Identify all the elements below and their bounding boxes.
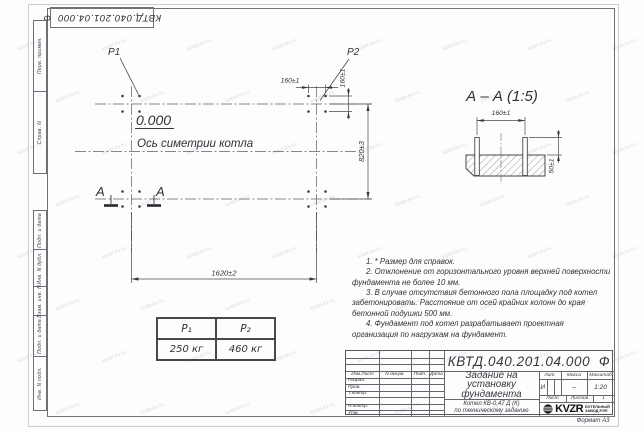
margin-label: Подп. и дата: [37, 213, 43, 248]
notes-block: 1. * Размер для справок. 2. Отклонение о…: [352, 257, 612, 340]
margin-label: Инв. N дубл.: [37, 252, 43, 285]
dim-arrow: [557, 155, 560, 161]
leader-lines: [120, 58, 349, 101]
tb-sheet-label: Лист: [539, 395, 566, 402]
anchor-bolt-left: [475, 138, 480, 176]
section-cut-marks: [104, 195, 161, 206]
dim-arrow: [367, 192, 370, 199]
dim-arrow: [347, 90, 350, 97]
section-view-title: А – А (1:5): [465, 88, 538, 105]
dim-820-label: 820±3: [357, 140, 366, 162]
margin-cell: Справ. N: [33, 91, 47, 174]
tb-mass-value: –: [561, 379, 587, 395]
note-4: 4. Фундамент под котел разрабатывает про…: [352, 319, 612, 340]
margin-label: Справ. N: [37, 121, 43, 144]
margin-cell: Подп. и дата: [33, 315, 47, 357]
load-table-header-p2: P₂: [216, 318, 275, 339]
tb-product-line1: Котел КВ-0,47 Д (К): [463, 401, 519, 408]
load-table: P₁ P₂ 250 кг 460 кг: [156, 317, 276, 361]
margin-label: Инв. N подл.: [37, 367, 43, 400]
rotated-doc-number: КВТД.040.201.04.000 Ф: [43, 12, 161, 23]
margin-cell: Взам. инв. N: [33, 286, 47, 316]
drawing-sheet: kotel-kv.rukotel-kv.rukotel-kv.rukotel-k…: [0, 0, 644, 430]
tb-title: Задание на установку фундамента: [444, 371, 539, 399]
margin-cell: Подп. и дата: [33, 210, 47, 250]
kvzr-logo-icon: [543, 404, 553, 414]
tb-row-tkontr: Т.контр.: [348, 391, 379, 398]
plan-axes: [75, 86, 372, 252]
note-1: 1. * Размер для справок.: [352, 257, 612, 267]
dim-arrow: [477, 119, 484, 122]
dim-1620-label: 1620±2: [212, 269, 238, 278]
dim-arrow: [557, 132, 560, 138]
dim-160s-lines: [477, 117, 525, 135]
load-point-p2-label: P2: [347, 47, 360, 58]
tb-product-line2: по техническому заданию: [454, 408, 528, 415]
anchor-bolt-right: [523, 138, 528, 176]
tb-lit-label: Лит.: [539, 371, 561, 379]
tb-col-podp: Подп.: [411, 371, 429, 378]
symmetry-axis-label: Ось симетрии котла: [137, 138, 253, 150]
kvzr-logo-subtitle: КОТЕЛЬНЫЙ ЗАВОД РЭП: [585, 405, 610, 413]
elevation-label: 0.000: [136, 112, 171, 128]
margin-cell: Перв. примен.: [33, 20, 47, 92]
rotated-doc-number-box: КВТД.040.201.04.000 Ф: [50, 7, 154, 28]
tb-col-data: Дата: [429, 371, 444, 378]
note-3: 3. В случае отсутствия бетонного пола пл…: [352, 288, 612, 319]
tb-title-line3: фундамента: [461, 390, 521, 399]
margin-strip-bottom: Подп. и дата Инв. N дубл. Взам. инв. N П…: [33, 210, 47, 411]
tb-sheets-value: 1: [593, 395, 614, 402]
load-table-header-p1: P₁: [157, 318, 216, 339]
kvzr-logo-text: KVZR: [555, 403, 583, 415]
kvzr-logo: KVZR КОТЕЛЬНЫЙ ЗАВОД РЭП: [539, 402, 614, 416]
tb-doc-number: КВТД.040.201.04.000 Ф: [444, 351, 614, 371]
kvzr-logo-sub2: ЗАВОД РЭП: [585, 409, 610, 413]
tb-scale-value: 1:20: [587, 379, 614, 395]
margin-label: Перв. примен.: [37, 37, 43, 74]
section-letter-left: А: [95, 184, 105, 199]
tb-mass-label: Масса: [561, 371, 587, 379]
tb-row-utv: Утв.: [348, 410, 379, 416]
margin-label: Взам. инв. N: [37, 285, 43, 318]
dim-160s-label: 160±1: [492, 110, 511, 117]
title-block: Изм.Лист N докум. Подп. Дата Разраб. Про…: [345, 350, 613, 415]
load-table-value-p1: 250 кг: [157, 339, 216, 360]
tb-product: Котел КВ-0,47 Д (К) по техническому зада…: [444, 399, 539, 416]
dim-arrow: [310, 277, 317, 280]
dim-160h-label: 160±1: [281, 78, 300, 85]
note-2: 2. Отклонение от горизонтального уровня …: [352, 267, 612, 288]
dim-arrow: [347, 112, 350, 119]
dim-50-label: 50±1: [549, 158, 556, 173]
format-label: Формат А3: [548, 418, 638, 424]
margin-cell: Инв. N дубл.: [33, 249, 47, 287]
tb-lit-value: И: [539, 379, 547, 395]
load-point-p1-label: P1: [108, 47, 120, 58]
margin-label: Подп. и дата: [37, 319, 43, 354]
dim-arrow: [367, 104, 370, 111]
tb-scale-label: Масштаб: [587, 371, 614, 379]
dim-arrow: [518, 119, 525, 122]
dim-arrow: [302, 86, 309, 89]
margin-cell: Инв. N подл.: [33, 356, 47, 411]
dim-arrow: [132, 277, 139, 280]
tb-sheets-label: Листов: [566, 395, 593, 402]
section-letter-right: А: [155, 184, 165, 199]
load-table-value-p2: 460 кг: [216, 339, 275, 360]
tb-col-docnum: N докум.: [379, 371, 411, 378]
dim-160v-label: 160±1: [340, 68, 347, 87]
margin-strip-top: Перв. примен. Справ. N: [33, 20, 47, 174]
